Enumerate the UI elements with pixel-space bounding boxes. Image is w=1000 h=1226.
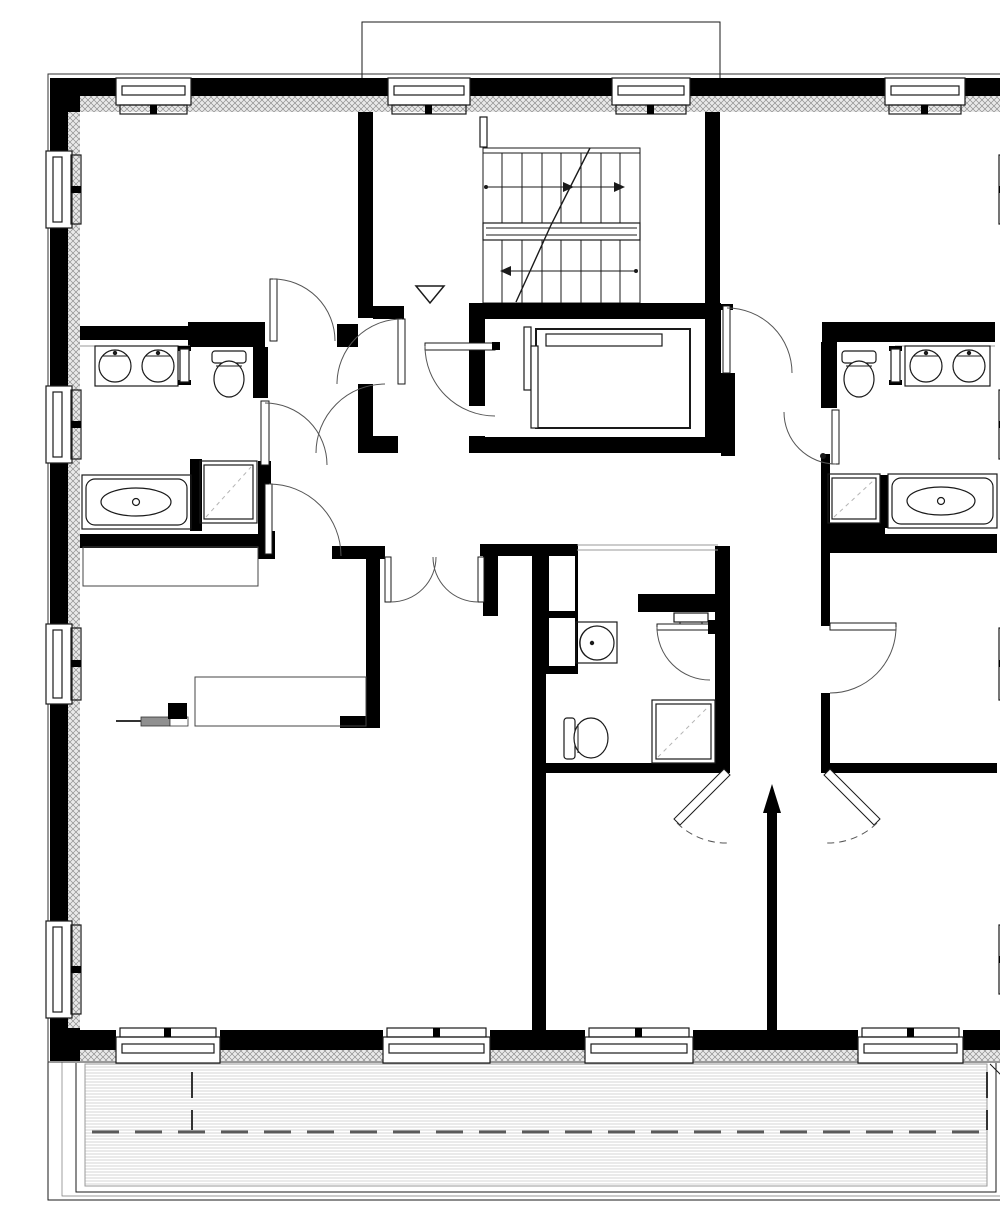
toilet: [212, 351, 246, 397]
floor-plan-drawing: Residential floor plan — two apartments …: [40, 16, 1000, 1210]
wall-wc-west: [532, 544, 546, 773]
wall-corridor-left-south: [332, 546, 385, 559]
elevator-door-panel-2: [531, 346, 538, 428]
hatch-left: [68, 112, 80, 1028]
wall-wc-east: [715, 546, 730, 773]
wall-hall-right-upper: [721, 373, 735, 456]
duct-cell-2: [549, 618, 575, 666]
wall-tub-divider-right: [880, 475, 888, 528]
balcony: [48, 1062, 1000, 1200]
wall-foot: [358, 436, 398, 453]
wall-bath-right-north: [822, 322, 995, 342]
toilet: [842, 351, 876, 397]
wall-bath-right-south: [821, 534, 997, 553]
balcony-decking: [85, 1064, 987, 1186]
wall-living-left-east: [366, 559, 380, 728]
wall-bedroom-right-west: [705, 112, 720, 306]
wall-stairhall-west-lower: [358, 384, 373, 436]
wall-bath-left-north-b: [188, 322, 265, 347]
wall-wc-south: [532, 763, 715, 773]
wall-vestibule-stub: [483, 556, 498, 616]
wall-bath-right-west-a: [821, 342, 837, 408]
duct-cell-1: [549, 556, 575, 611]
toilet: [564, 718, 608, 759]
floor-plan-sheet: Residential floor plan — two apartments …: [40, 16, 1000, 1210]
wall-bath-left-north-a: [80, 326, 190, 340]
elevator: [469, 303, 721, 453]
elevator-shaft-interior: [485, 319, 705, 437]
wall-room-right-north: [827, 763, 997, 773]
wall-stairhall-west-upper: [358, 112, 373, 318]
wall-toilet-niche-left: [253, 347, 268, 398]
wall-hall-right-lower: [821, 693, 830, 773]
elevator-door-panel-1: [524, 327, 531, 390]
wall-entry-left-stub: [373, 306, 404, 319]
elevator-door-gap: [469, 406, 485, 436]
hatch-top: [80, 96, 1000, 112]
wall-bedroom-left-jamb: [337, 324, 358, 347]
wall-room-bottom-center-west: [532, 773, 546, 1030]
vanity-divider: [889, 346, 902, 385]
wall-bottom-center-divider: [767, 811, 777, 1030]
wall-wc-north-block: [638, 594, 715, 612]
vanity-divider: [178, 346, 191, 385]
wall-bath-left-south: [80, 534, 265, 548]
